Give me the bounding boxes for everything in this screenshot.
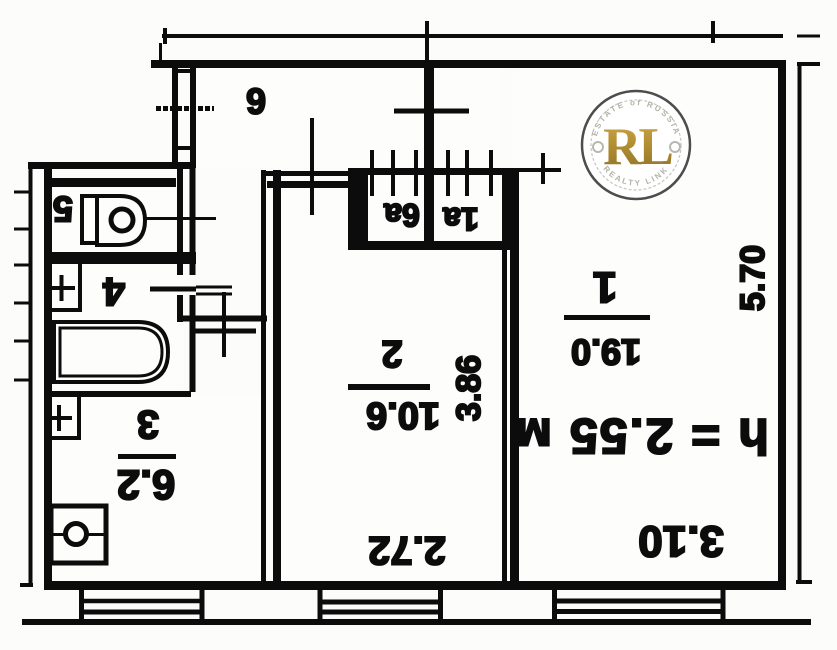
- svg-text:6а: 6а: [384, 197, 420, 233]
- svg-text:3.86: 3.86: [450, 355, 488, 421]
- svg-text:2.72: 2.72: [368, 528, 446, 572]
- svg-text:5: 5: [53, 189, 73, 230]
- svg-text:6: 6: [246, 81, 266, 122]
- svg-text:4: 4: [102, 269, 125, 313]
- svg-text:3: 3: [137, 402, 159, 446]
- svg-text:5.70: 5.70: [734, 245, 772, 311]
- svg-text:3.10: 3.10: [638, 517, 724, 566]
- svg-text:1а: 1а: [443, 201, 479, 237]
- svg-text:6.2: 6.2: [117, 462, 175, 509]
- svg-text:h = 2.55 м: h = 2.55 м: [513, 408, 769, 464]
- svg-text:2: 2: [381, 332, 402, 374]
- svg-text:1: 1: [593, 263, 617, 312]
- svg-text:10.6: 10.6: [366, 394, 440, 436]
- svg-text:19.0: 19.0: [571, 332, 641, 373]
